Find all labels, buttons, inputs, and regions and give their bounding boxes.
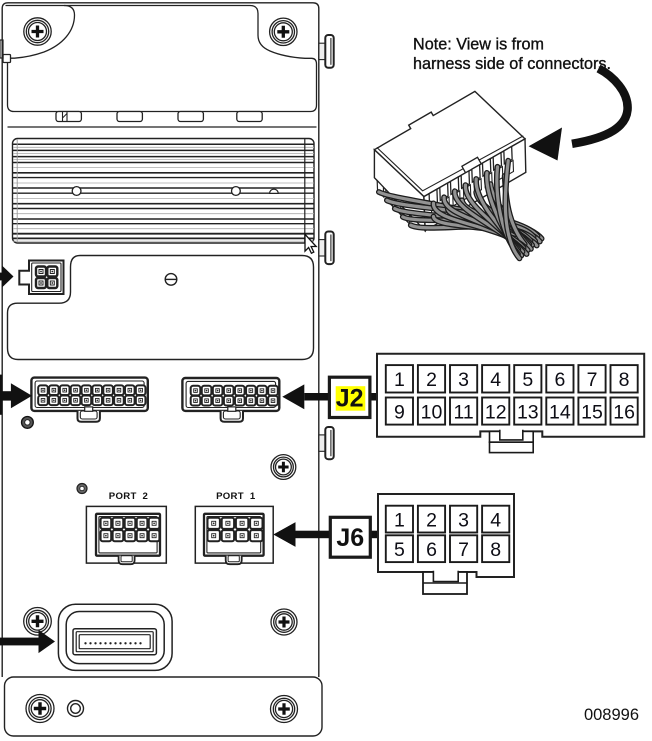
svg-text:8: 8 [490, 539, 501, 561]
svg-text:8: 8 [619, 369, 630, 391]
svg-text:008996: 008996 [584, 706, 639, 724]
svg-text:15: 15 [581, 401, 603, 423]
svg-text:J2: J2 [336, 385, 364, 413]
svg-text:4: 4 [490, 510, 501, 532]
svg-text:harness side of connectors.: harness side of connectors. [413, 55, 611, 73]
svg-text:5: 5 [522, 369, 533, 391]
svg-text:6: 6 [554, 369, 565, 391]
svg-text:1: 1 [394, 369, 405, 391]
svg-text:4: 4 [490, 369, 501, 391]
svg-text:13: 13 [517, 401, 539, 423]
svg-text:2: 2 [426, 369, 437, 391]
svg-text:J6: J6 [336, 524, 364, 552]
svg-text:6: 6 [426, 539, 437, 561]
svg-text:9: 9 [394, 401, 405, 423]
svg-text:16: 16 [613, 401, 635, 423]
svg-text:12: 12 [485, 401, 507, 423]
svg-text:5: 5 [394, 539, 405, 561]
svg-text:11: 11 [453, 401, 473, 423]
svg-text:7: 7 [587, 369, 598, 391]
svg-text:3: 3 [458, 510, 469, 532]
svg-text:Note: View is from: Note: View is from [413, 36, 544, 54]
svg-text:2: 2 [426, 510, 437, 532]
svg-text:1: 1 [394, 510, 405, 532]
svg-text:PORT 1: PORT 1 [216, 491, 256, 502]
svg-text:7: 7 [458, 539, 469, 561]
svg-text:3: 3 [458, 369, 469, 391]
svg-text:PORT 2: PORT 2 [109, 491, 148, 502]
svg-text:14: 14 [549, 401, 571, 423]
svg-text:10: 10 [421, 401, 443, 423]
